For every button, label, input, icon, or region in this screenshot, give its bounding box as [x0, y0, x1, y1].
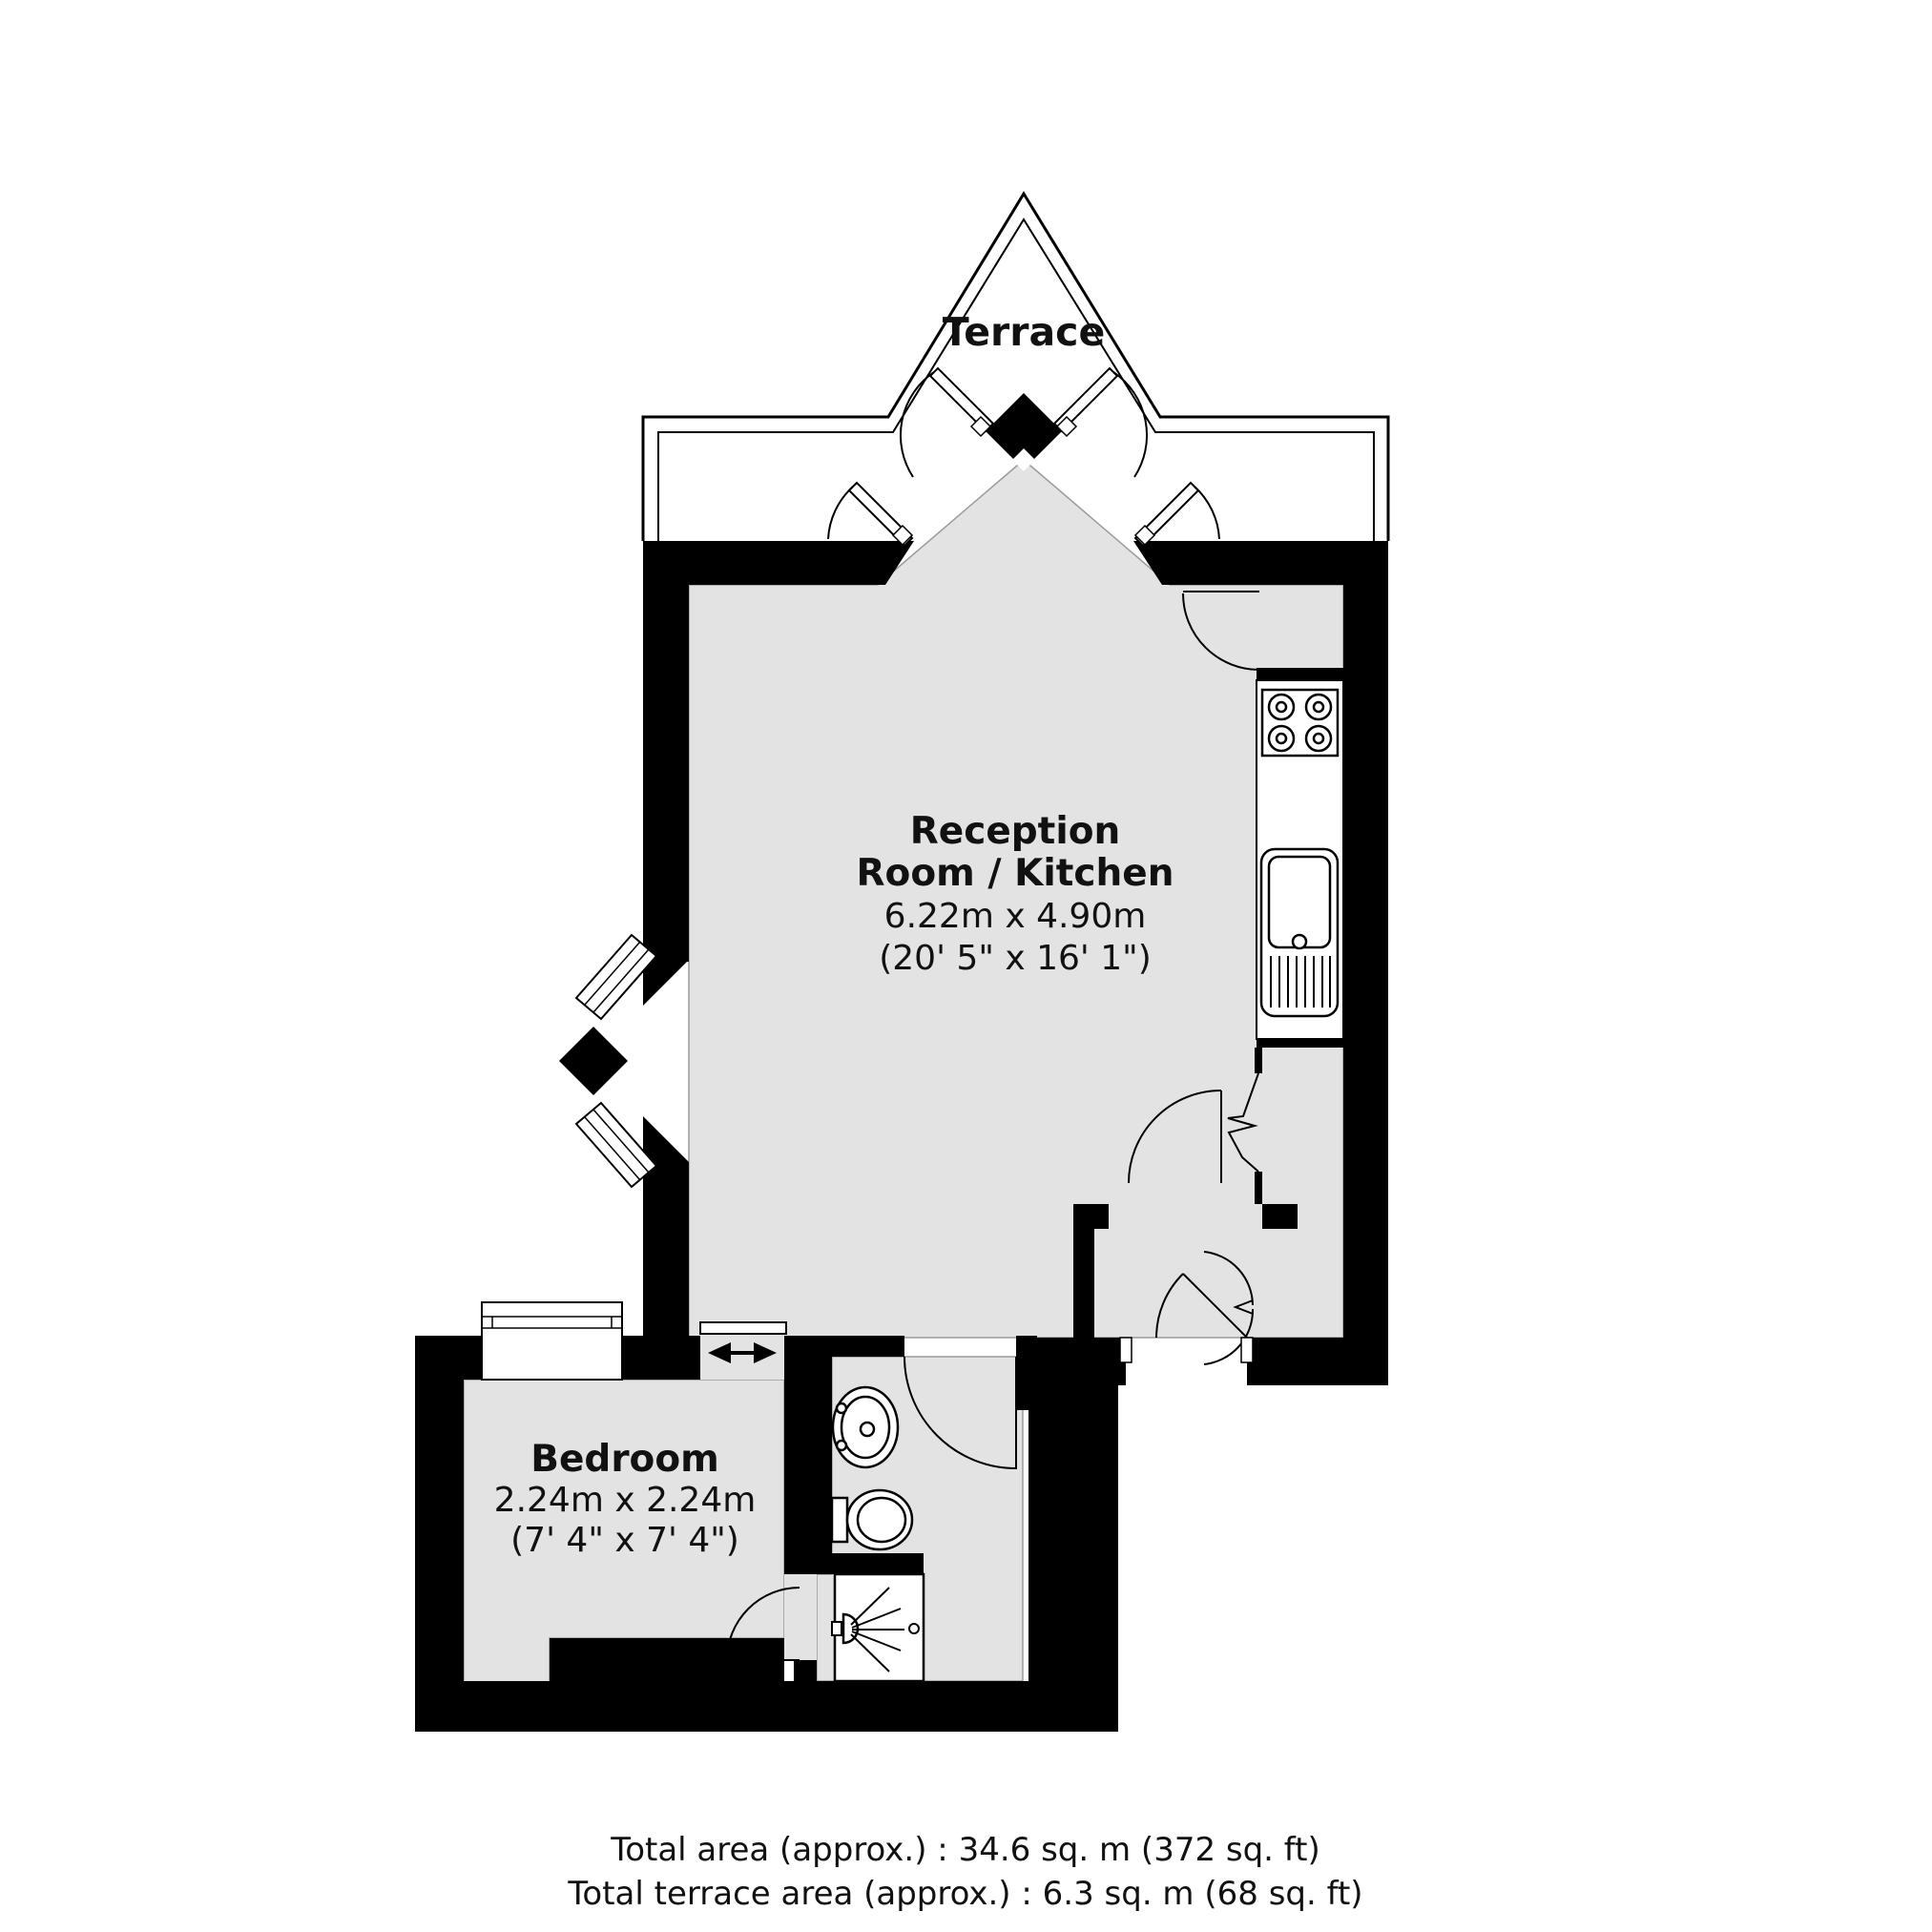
area-summary: Total area (approx.) : 34.6 sq. m (372 s… [567, 1831, 1362, 1913]
svg-text:(7' 4" x 7' 4"): (7' 4" x 7' 4") [510, 1521, 739, 1560]
svg-text:6.22m x 4.90m: 6.22m x 4.90m [884, 897, 1147, 936]
entrance-jamb-left [1120, 1338, 1132, 1362]
terrace-area-text: Total terrace area (approx.) : 6.3 sq. m… [567, 1875, 1362, 1913]
kitchen-counter [1257, 680, 1343, 1039]
bay-wall-diamond [559, 1027, 628, 1095]
entrance-jamb-right [1241, 1338, 1253, 1362]
shower-icon [832, 1574, 924, 1681]
basin-icon [833, 1387, 898, 1467]
svg-text:(20' 5" x 16' 1"): (20' 5" x 16' 1") [879, 939, 1152, 978]
floorplan-svg: Terrace Reception Room / Kitchen 6.22m x… [0, 0, 1932, 1932]
bedroom-window-icon [482, 1302, 622, 1380]
svg-text:2.24m x 2.24m: 2.24m x 2.24m [494, 1481, 757, 1520]
kitchen-sink-icon [1261, 849, 1338, 1016]
total-area-text: Total area (approx.) : 34.6 sq. m (372 s… [610, 1831, 1320, 1869]
sliding-doorway-floor [700, 1336, 786, 1380]
terrace-label: Terrace [943, 309, 1106, 355]
svg-text:Bedroom: Bedroom [530, 1438, 719, 1481]
hob-icon [1262, 690, 1338, 756]
svg-text:Reception: Reception [910, 810, 1121, 853]
bedroom-label: Bedroom 2.24m x 2.24m (7' 4" x 7' 4") [494, 1438, 757, 1560]
svg-text:Room / Kitchen: Room / Kitchen [857, 852, 1174, 895]
toilet-icon [832, 1490, 912, 1549]
bedroom-doorway-floor [784, 1574, 817, 1660]
floorplan-page: Terrace Reception Room / Kitchen 6.22m x… [0, 0, 1932, 1932]
